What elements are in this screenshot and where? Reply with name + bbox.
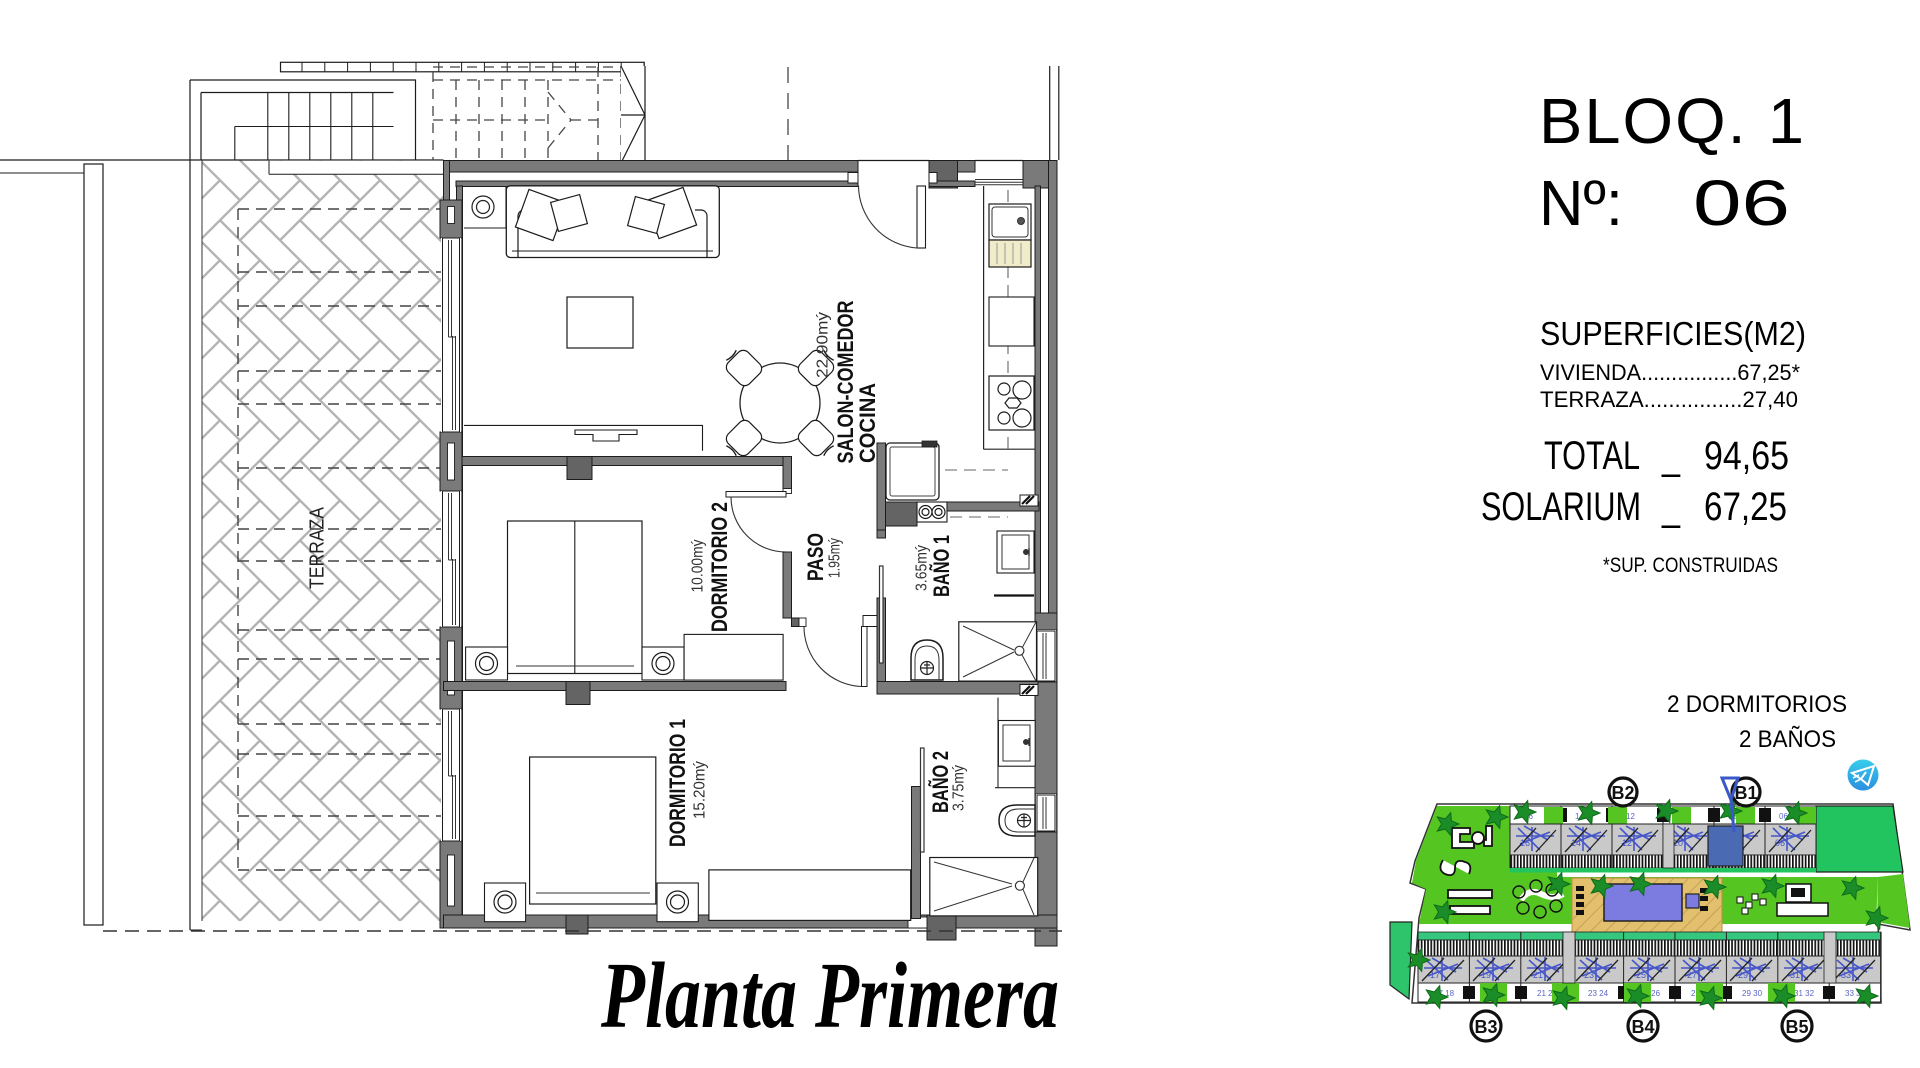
- svg-text:BAÑO 2: BAÑO 2: [928, 751, 953, 813]
- svg-text:TERRAZA................27,40: TERRAZA................27,40: [1540, 387, 1798, 412]
- svg-text:DORMITORIO 1: DORMITORIO 1: [665, 719, 690, 847]
- svg-text:10: 10: [1673, 838, 1683, 848]
- svg-text:31: 31: [1790, 970, 1800, 980]
- svg-text:3.65mý: 3.65mý: [914, 545, 931, 591]
- svg-text:16: 16: [1520, 838, 1530, 848]
- svg-text:23 24: 23 24: [1588, 989, 1609, 998]
- svg-text:21: 21: [1533, 970, 1543, 980]
- svg-text:VIVIENDA................67,25*: VIVIENDA................67,25*: [1540, 360, 1800, 385]
- svg-text:14: 14: [1571, 838, 1581, 848]
- svg-text:29 30: 29 30: [1742, 989, 1763, 998]
- svg-text:06: 06: [1775, 838, 1785, 848]
- svg-text:10.00mý: 10.00mý: [690, 539, 707, 592]
- svg-text:TERRAZA: TERRAZA: [305, 507, 328, 589]
- svg-text:COCINA: COCINA: [855, 383, 880, 463]
- svg-text:B1: B1: [1734, 783, 1757, 803]
- svg-text:12: 12: [1622, 838, 1632, 848]
- svg-text:31 32: 31 32: [1794, 989, 1815, 998]
- svg-text:12: 12: [1626, 812, 1635, 821]
- svg-text:TOTAL: TOTAL: [1544, 434, 1640, 478]
- svg-text:22.90mý: 22.90mý: [815, 312, 832, 378]
- svg-text:Nº:: Nº:: [1539, 167, 1623, 239]
- svg-text:_: _: [1661, 485, 1680, 529]
- svg-text:SUPERFICIES(M2): SUPERFICIES(M2): [1540, 315, 1806, 352]
- svg-text:27: 27: [1687, 970, 1697, 980]
- svg-text:2 BAÑOS: 2 BAÑOS: [1739, 726, 1836, 753]
- svg-text:67,25: 67,25: [1704, 485, 1787, 529]
- svg-text:29: 29: [1738, 970, 1748, 980]
- svg-text:15.20mý: 15.20mý: [692, 761, 709, 819]
- svg-text:*SUP. CONSTRUIDAS: *SUP. CONSTRUIDAS: [1603, 554, 1778, 577]
- svg-text:SOLARIUM: SOLARIUM: [1481, 485, 1641, 529]
- svg-text:19: 19: [1481, 970, 1491, 980]
- svg-text:B4: B4: [1631, 1017, 1654, 1037]
- svg-text:25: 25: [1636, 970, 1646, 980]
- svg-text:B3: B3: [1474, 1017, 1497, 1037]
- svg-text:BLOQ. 1: BLOQ. 1: [1539, 85, 1806, 157]
- svg-text:BAÑO 1: BAÑO 1: [929, 535, 954, 597]
- svg-text:3.75mý: 3.75mý: [951, 765, 968, 811]
- svg-text:33: 33: [1841, 970, 1851, 980]
- svg-text:2 DORMITORIOS: 2 DORMITORIOS: [1667, 691, 1847, 718]
- svg-text:06: 06: [1693, 167, 1790, 239]
- svg-text:94,65: 94,65: [1704, 434, 1789, 478]
- svg-text:_: _: [1661, 434, 1680, 478]
- svg-text:17: 17: [1430, 970, 1440, 980]
- svg-text:PASO: PASO: [803, 533, 828, 581]
- svg-text:B2: B2: [1611, 783, 1634, 803]
- svg-text:B5: B5: [1785, 1017, 1808, 1037]
- svg-text:23: 23: [1584, 970, 1594, 980]
- svg-text:Planta Primera: Planta Primera: [600, 944, 1059, 1048]
- svg-text:DORMITORIO 2: DORMITORIO 2: [707, 502, 732, 632]
- svg-text:1.95mý: 1.95mý: [827, 538, 844, 578]
